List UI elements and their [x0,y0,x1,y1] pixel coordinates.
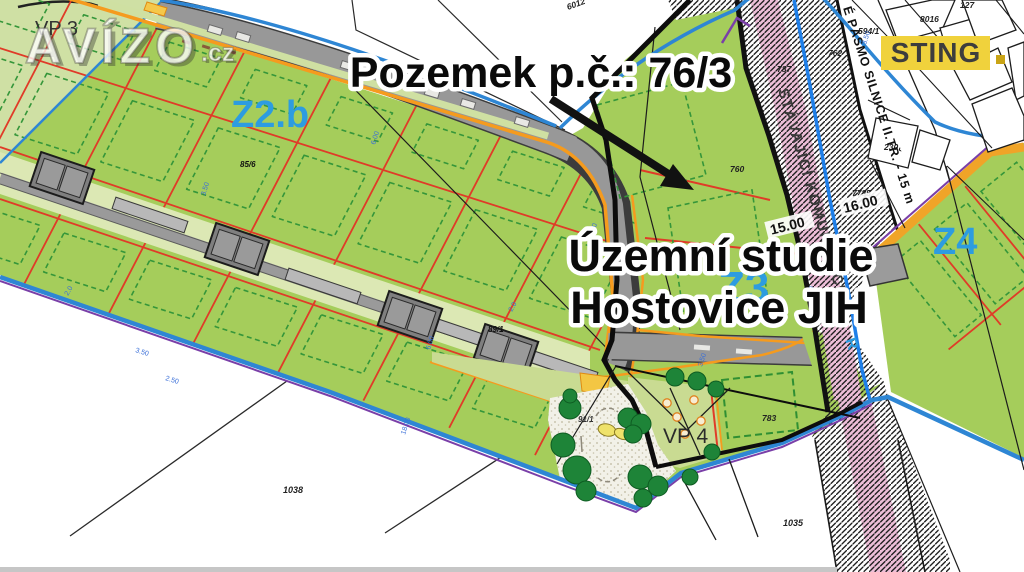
svg-text:Hostovice JIH: Hostovice JIH [570,282,868,333]
svg-text:VP 4: VP 4 [663,425,708,448]
svg-text:Pozemek p.č.: 76/3: Pozemek p.č.: 76/3 [350,49,732,97]
svg-text:89/1: 89/1 [488,325,504,334]
svg-text:Z4: Z4 [933,221,977,263]
svg-text:Z2.b: Z2.b [231,94,309,136]
svg-text:AVÍZO: AVÍZO [25,18,199,74]
svg-text:85/6: 85/6 [240,160,256,169]
svg-text:783: 783 [762,413,776,423]
svg-text:8016: 8016 [920,14,939,24]
svg-text:Územní studie: Územní studie [568,230,873,281]
svg-text:127: 127 [960,0,975,10]
svg-text:1035: 1035 [783,518,804,528]
svg-text:STING: STING [891,37,982,68]
svg-text:760: 760 [730,164,744,174]
svg-text:762: 762 [828,48,842,58]
svg-text:1038: 1038 [283,485,303,495]
svg-text:.cz: .cz [201,39,234,67]
svg-text:787: 787 [777,64,792,74]
